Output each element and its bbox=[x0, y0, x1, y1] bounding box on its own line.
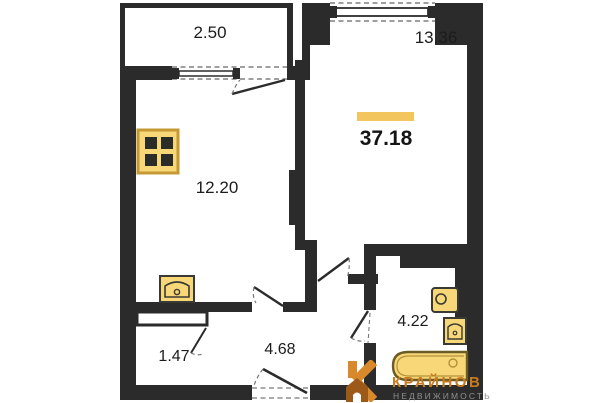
bathroom-sink-icon bbox=[444, 318, 466, 344]
kitchen-sink-icon bbox=[160, 276, 194, 302]
brand-logo-icon bbox=[344, 360, 388, 402]
wall-segment bbox=[120, 66, 136, 400]
balcony-window bbox=[172, 67, 287, 79]
wall-segment bbox=[120, 3, 125, 66]
brand-tagline: НЕДВИЖИМОСТЬ bbox=[393, 391, 492, 401]
floorplan: 2.50 13.36 12.20 1.47 4.68 4.22 37.18 КР… bbox=[0, 0, 605, 403]
stove-icon bbox=[138, 130, 178, 173]
bathroom-door bbox=[351, 311, 370, 343]
bathroom-area-label: 4.22 bbox=[397, 313, 428, 331]
wall-segment bbox=[364, 244, 376, 310]
room-area-label: 12.20 bbox=[196, 178, 239, 198]
wall-segment bbox=[302, 3, 330, 45]
total-area-label: 37.18 bbox=[360, 127, 413, 151]
wall-segment bbox=[467, 3, 483, 400]
balcony-area-label: 2.50 bbox=[193, 23, 226, 43]
duct-shaft bbox=[137, 312, 207, 325]
total-area-accent-bar bbox=[357, 112, 414, 121]
wall-segment bbox=[295, 240, 317, 250]
brand-name: КРАЙНОВ bbox=[392, 374, 482, 391]
wall-segment bbox=[120, 385, 252, 400]
wall-segment bbox=[400, 256, 467, 268]
wall-segment bbox=[305, 250, 317, 312]
walls bbox=[120, 3, 483, 400]
living-room-door bbox=[318, 258, 349, 281]
hallway-area-label: 4.68 bbox=[264, 341, 295, 359]
washing-machine-icon bbox=[432, 288, 458, 312]
storage-area-label: 1.47 bbox=[158, 348, 189, 366]
wall-segment bbox=[289, 170, 295, 225]
entrance-door bbox=[252, 369, 310, 398]
balcony-door bbox=[232, 80, 285, 94]
wall-segment bbox=[365, 244, 483, 256]
wall-segment bbox=[120, 3, 293, 8]
wall-segment bbox=[287, 3, 293, 66]
floorplan-drawing bbox=[0, 0, 605, 403]
wall-segment bbox=[283, 302, 305, 312]
room-door bbox=[253, 287, 283, 306]
living-room-window bbox=[330, 3, 435, 21]
brand-logo: КРАЙНОВ НЕДВИЖИМОСТЬ bbox=[344, 360, 494, 402]
storage-door bbox=[191, 328, 206, 355]
living-room-area-label: 13.36 bbox=[415, 28, 458, 48]
wall-segment bbox=[295, 60, 305, 250]
